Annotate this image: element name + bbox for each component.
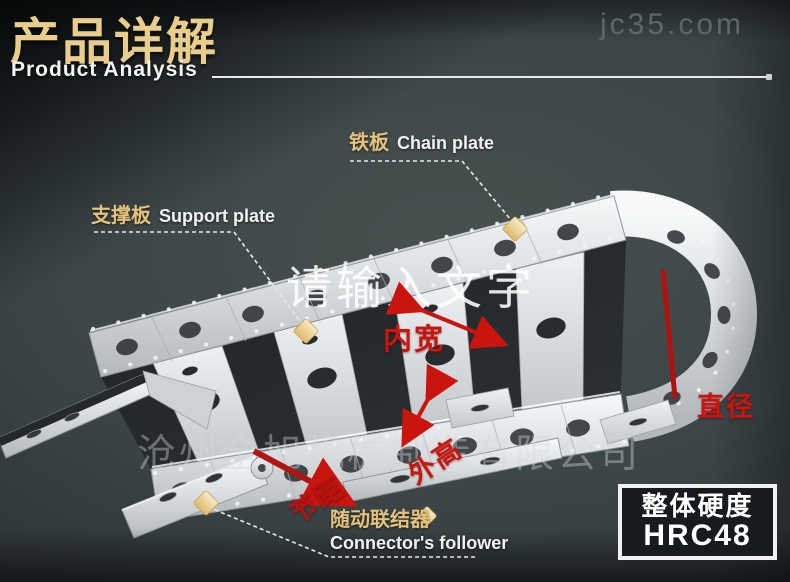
label-support-plate-cn: 支撑板	[91, 199, 151, 228]
diamond-markers	[193, 216, 527, 526]
hardness-badge: 整体硬度 HRC48	[618, 484, 777, 560]
label-inner-width: 内宽	[383, 316, 445, 358]
label-chain-plate-cn: 铁板	[349, 126, 389, 155]
label-chain-plate: 铁板 Chain plate	[349, 126, 494, 155]
label-chain-plate-en: Chain plate	[397, 133, 494, 154]
hardness-badge-value: HRC48	[624, 520, 771, 552]
product-analysis-poster: 沧州全旭机械制造有限公司 请输入文字 jc35.com	[0, 0, 790, 582]
label-diameter: 直径	[697, 385, 755, 424]
label-follower: 随动联结器 Connector's follower	[330, 503, 508, 554]
label-support-plate: 支撑板 Support plate	[91, 199, 275, 228]
header-rule	[212, 76, 768, 78]
label-support-plate-en: Support plate	[159, 206, 275, 227]
hardness-badge-title: 整体硬度	[624, 493, 771, 520]
label-follower-en: Connector's follower	[330, 533, 508, 554]
page-subtitle: Product Analysis	[11, 58, 198, 82]
label-follower-cn: 随动联结器	[330, 503, 430, 532]
